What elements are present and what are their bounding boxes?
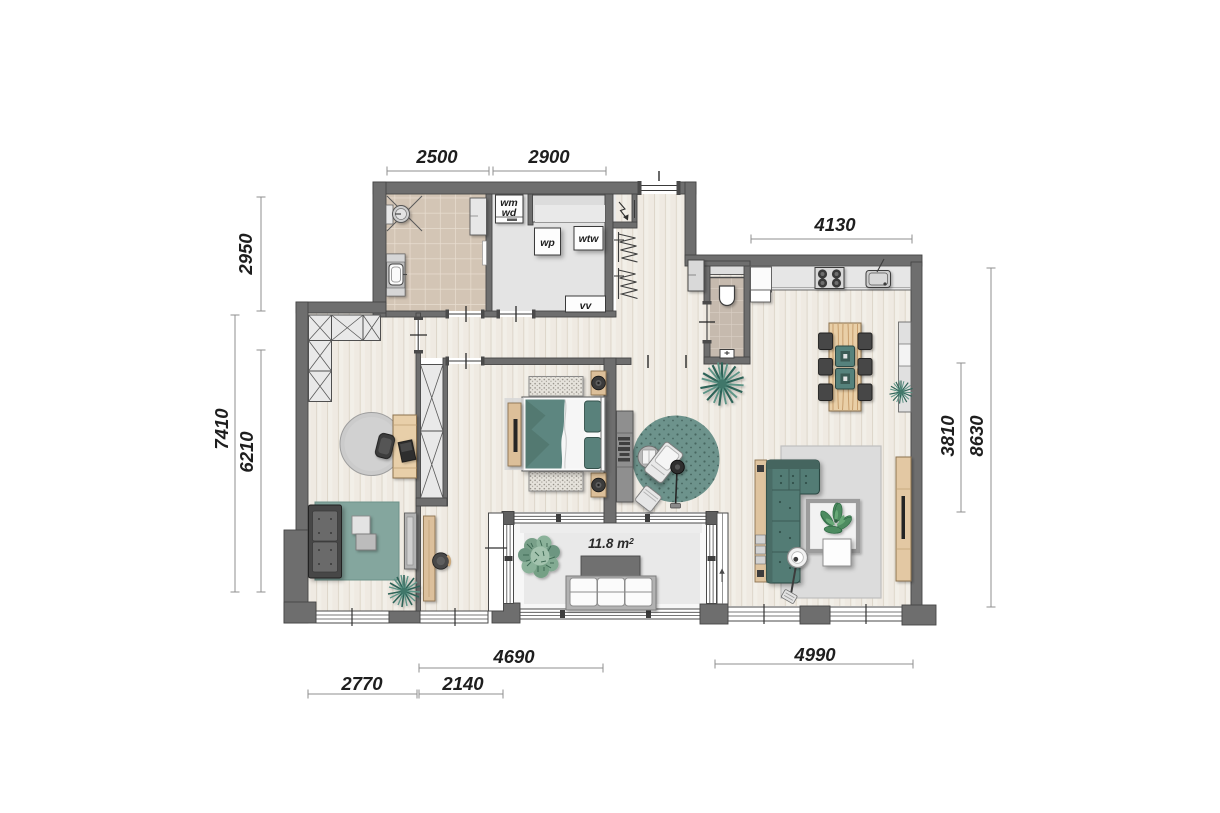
svg-text:2500: 2500 [415,146,458,167]
svg-text:2950: 2950 [235,233,256,276]
svg-text:7410: 7410 [211,408,232,450]
svg-text:8630: 8630 [966,415,987,457]
svg-text:wd: wd [502,207,517,219]
svg-text:4690: 4690 [492,646,535,667]
svg-text:2900: 2900 [527,146,570,167]
svg-text:4130: 4130 [813,214,856,235]
svg-text:4990: 4990 [793,644,836,665]
svg-text:vv: vv [580,300,593,312]
svg-text:wp: wp [540,237,555,249]
svg-text:11.8 m2: 11.8 m2 [588,536,634,551]
svg-text:2770: 2770 [340,673,383,694]
svg-text:wtw: wtw [579,233,600,245]
svg-text:6210: 6210 [236,431,257,473]
svg-text:2140: 2140 [441,673,484,694]
svg-text:3810: 3810 [937,415,958,457]
